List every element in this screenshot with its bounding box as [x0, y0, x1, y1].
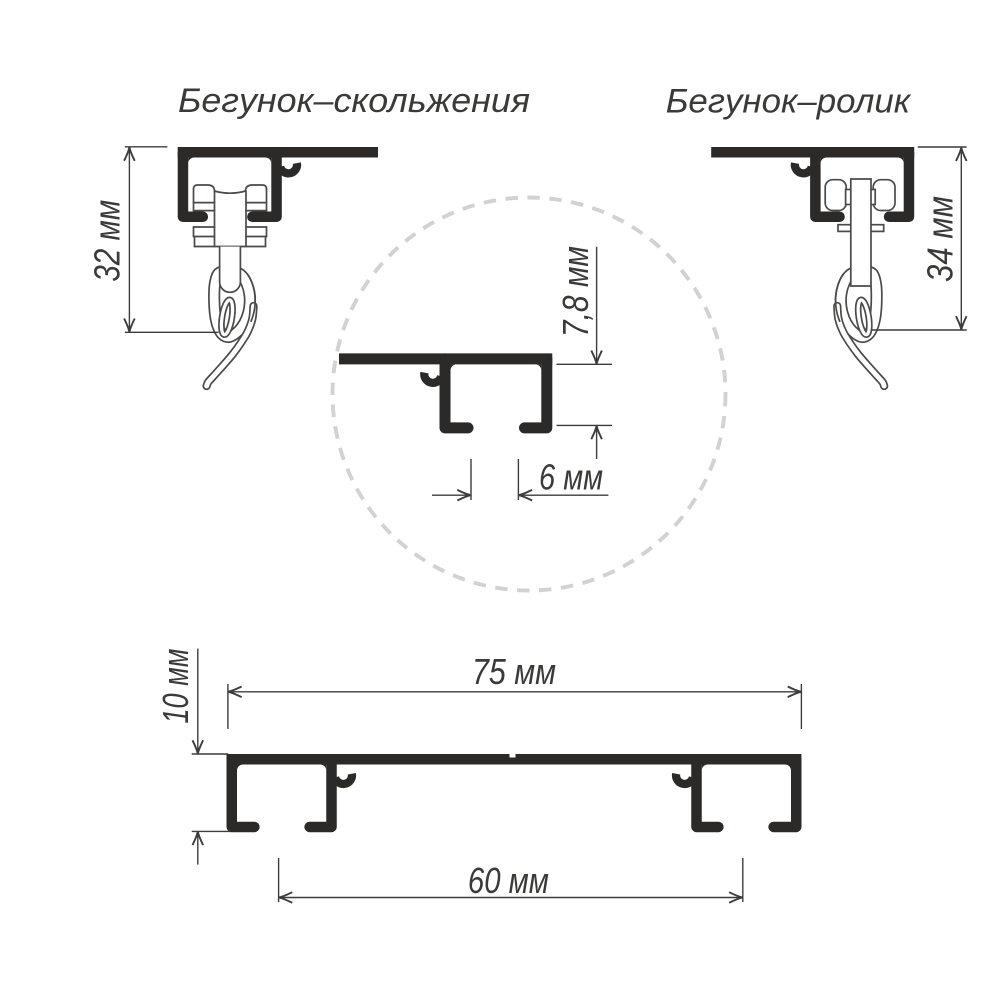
svg-text:32 мм: 32 мм [87, 200, 128, 282]
svg-text:Бегунок–ролик: Бегунок–ролик [666, 83, 912, 121]
svg-text:34 мм: 34 мм [920, 196, 961, 282]
svg-text:Бегунок–скольжения: Бегунок–скольжения [178, 82, 530, 120]
svg-text:75 мм: 75 мм [472, 651, 556, 692]
svg-text:7,8 мм: 7,8 мм [555, 246, 596, 337]
svg-text:6 мм: 6 мм [539, 457, 603, 498]
svg-text:10 мм: 10 мм [155, 649, 196, 724]
svg-text:60 мм: 60 мм [468, 860, 549, 901]
